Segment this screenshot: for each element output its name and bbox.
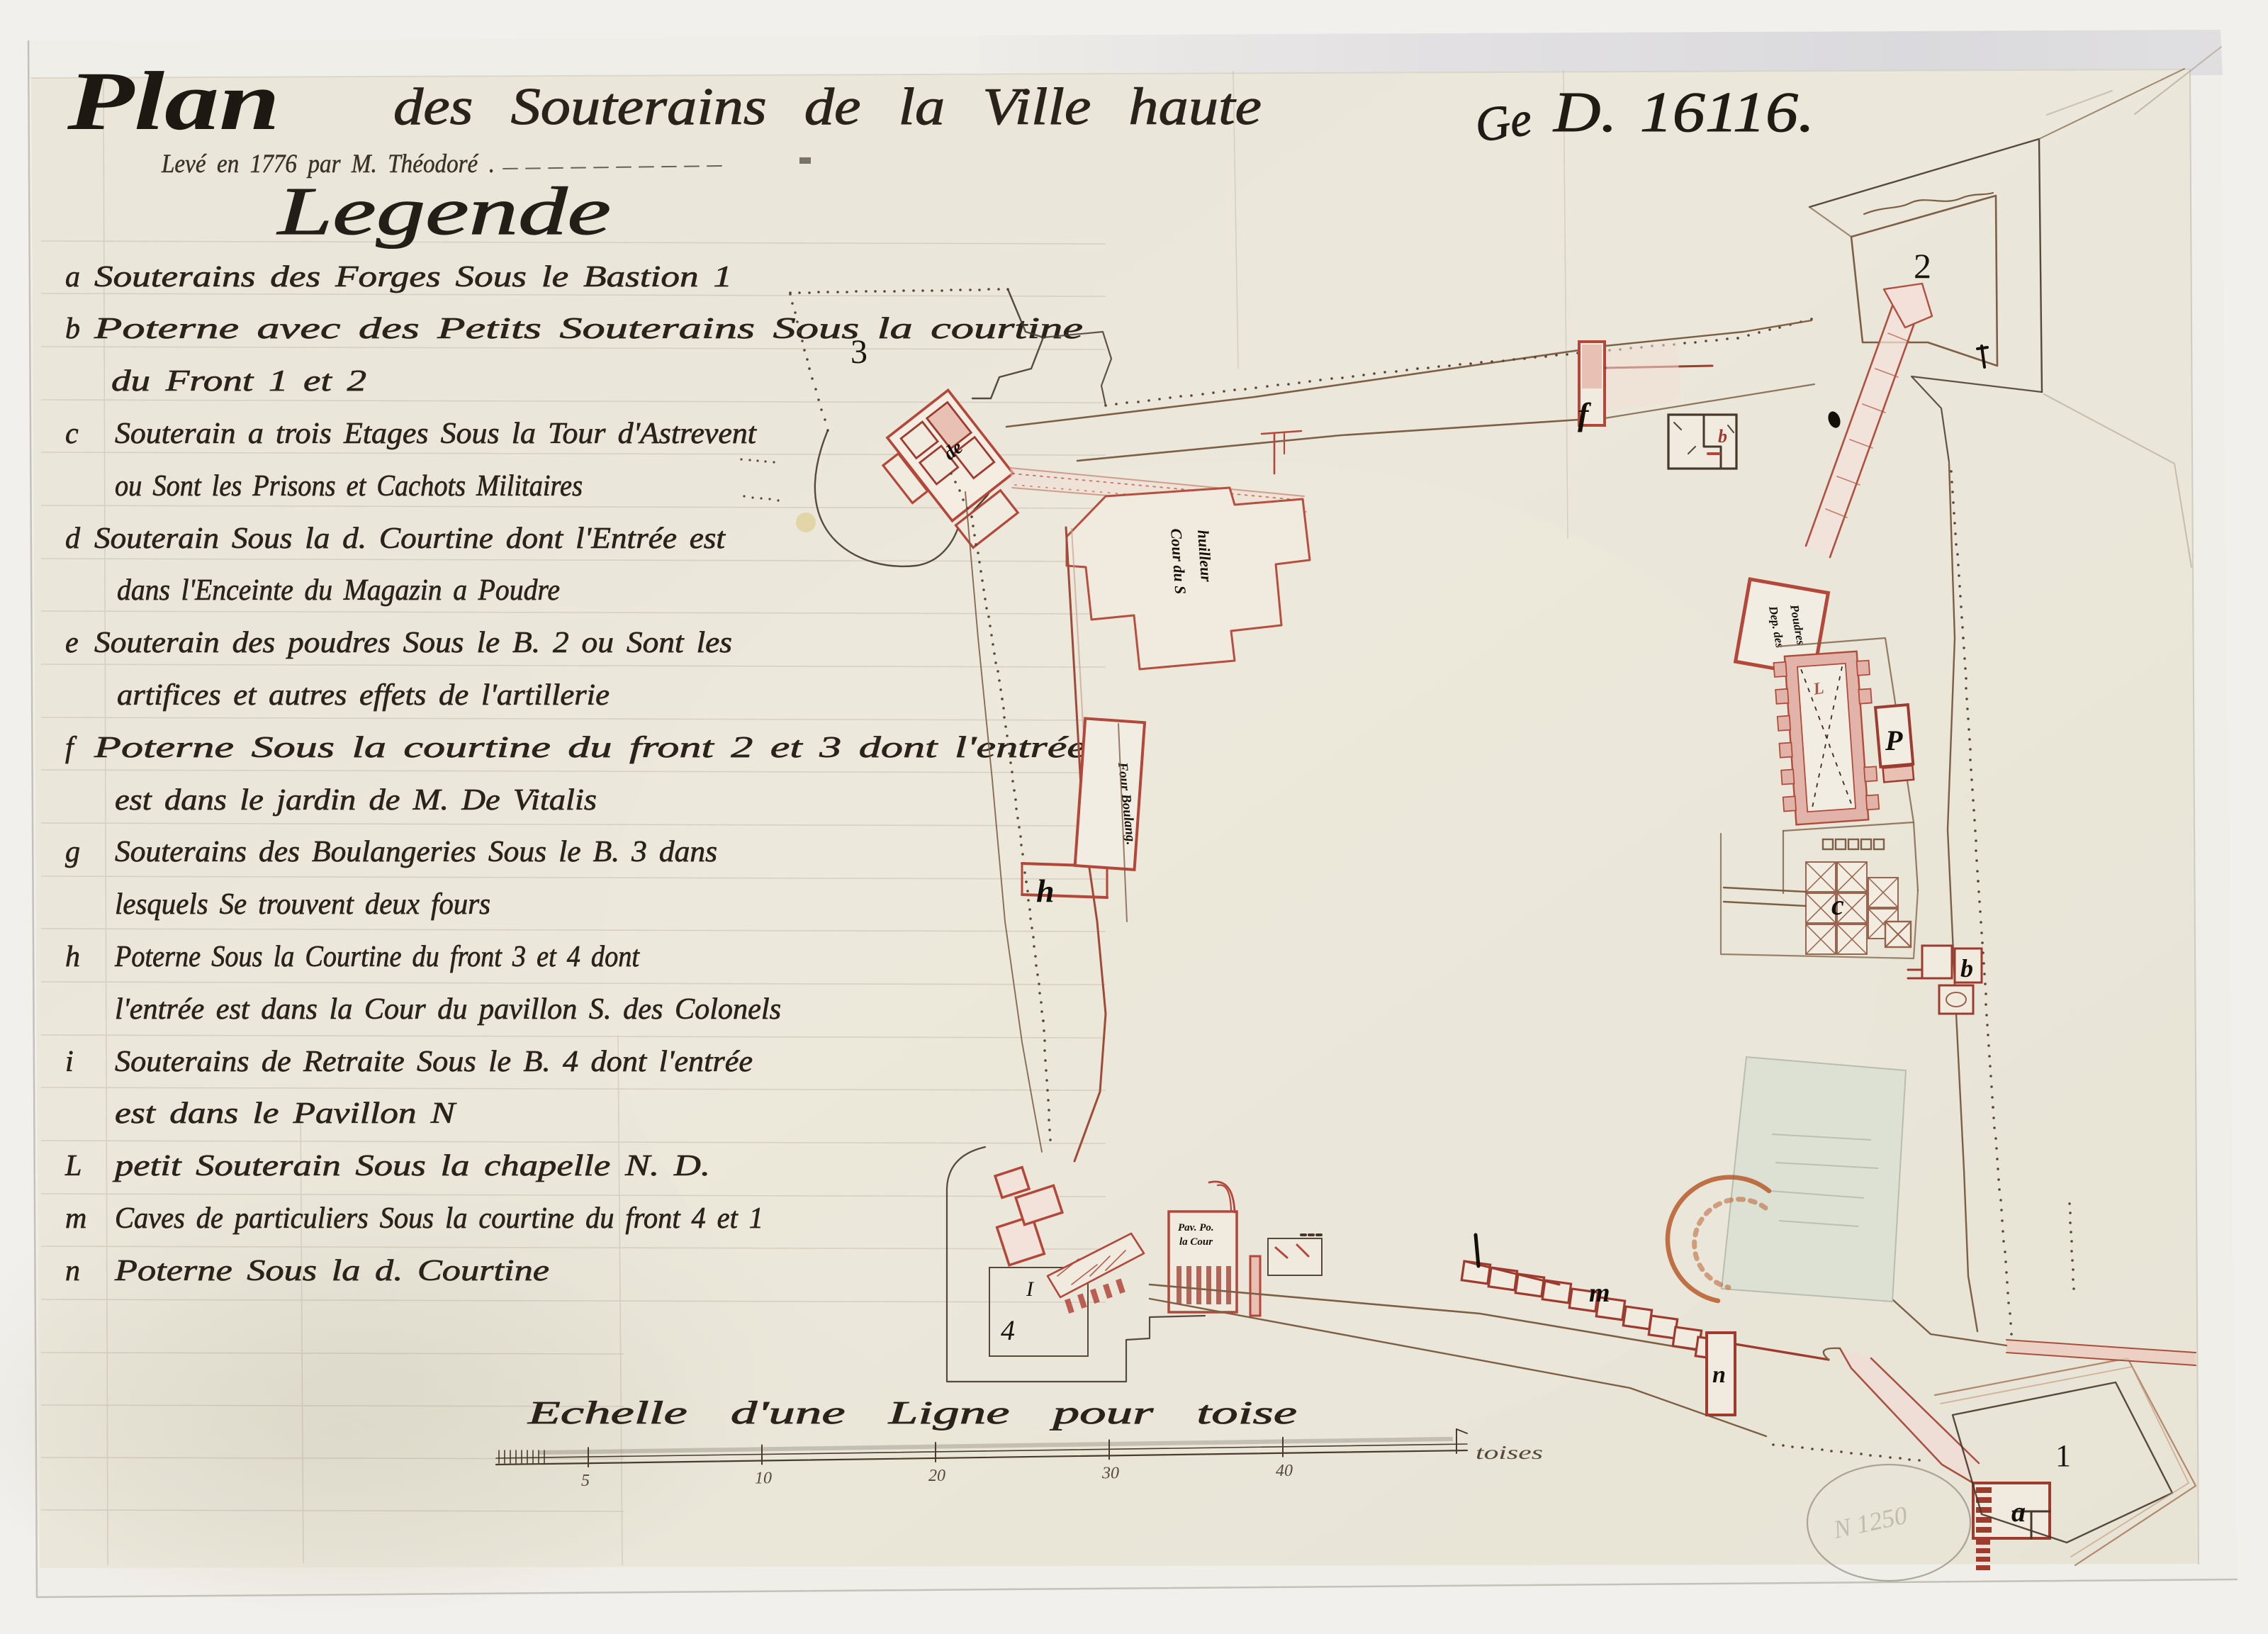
svg-text:D. 16116.: D. 16116. [1553, 82, 1814, 144]
svg-text:Souterain a trois Etages Sous: Souterain a trois Etages Sous la Tour d'… [115, 418, 757, 450]
svg-text:h: h [65, 941, 80, 973]
svg-text:Souterains des Forges Sous le: Souterains des Forges Sous le Bastion 1 [94, 261, 732, 293]
svg-text:m: m [1589, 1278, 1610, 1308]
svg-text:Caves de particuliers Sous la: Caves de particuliers Sous la courtine d… [115, 1202, 763, 1235]
svg-text:g: g [65, 836, 80, 868]
svg-text:l'entrée est dans la Cour du p: l'entrée est dans la Cour du pavillon S.… [115, 993, 781, 1026]
svg-text:P: P [1885, 724, 1903, 756]
svg-text:Souterains de Retraite Sous le: Souterains de Retraite Sous le B. 4 dont… [115, 1046, 753, 1078]
svg-text:a: a [2011, 1496, 2026, 1528]
svg-text:Poterne avec des Petits Souter: Poterne avec des Petits Souterains Sous … [93, 313, 1083, 345]
svg-text:L: L [64, 1150, 82, 1182]
svg-text:Plan: Plan [67, 55, 280, 147]
svg-text:20: 20 [928, 1467, 945, 1485]
svg-text:la Cour: la Cour [1179, 1236, 1213, 1248]
svg-text:30: 30 [1101, 1464, 1119, 1482]
svg-text:40: 40 [1276, 1462, 1293, 1480]
svg-text:dans l'Enceinte du Magazin a P: dans l'Enceinte du Magazin a Poudre [117, 574, 560, 607]
svg-text:n: n [65, 1255, 80, 1287]
svg-text:est dans le Pavillon N: est dans le Pavillon N [115, 1097, 456, 1130]
svg-text:lesquels Se trouvent deux four: lesquels Se trouvent deux fours [115, 888, 490, 921]
svg-text:b: b [1960, 954, 1973, 983]
svg-text:d: d [65, 522, 81, 555]
svg-text:des Souterains de la Ville hau: des Souterains de la Ville haute [393, 78, 1262, 136]
svg-text:b: b [1718, 426, 1727, 447]
svg-text:toises: toises [1476, 1442, 1543, 1463]
svg-text:huilleur: huilleur [1194, 530, 1216, 583]
svg-text:Ge: Ge [1472, 91, 1535, 152]
svg-text:2: 2 [1914, 246, 1931, 286]
svg-text:Poterne Sous la d. Courtine: Poterne Sous la d. Courtine [114, 1255, 549, 1287]
svg-text:artifices et autres effets de: artifices et autres effets de l'artiller… [117, 679, 610, 712]
svg-text:Poterne Sous la courtine du fr: Poterne Sous la courtine du front 2 et 3… [94, 732, 1087, 764]
svg-text:a: a [65, 261, 80, 293]
svg-text:3: 3 [850, 333, 868, 371]
svg-text:Souterain Sous la d. Courtine: Souterain Sous la d. Courtine dont l'Ent… [94, 522, 726, 555]
svg-text:Poterne Sous la Courtine du fr: Poterne Sous la Courtine du front 3 et 4… [114, 941, 640, 973]
svg-text:10: 10 [755, 1470, 772, 1488]
svg-text:c: c [65, 418, 79, 450]
svg-text:1: 1 [2055, 1438, 2071, 1473]
svg-text:b: b [65, 313, 80, 345]
svg-text:du Front 1 et 2: du Front 1 et 2 [111, 365, 366, 398]
svg-text:Pav. Po.: Pav. Po. [1178, 1222, 1214, 1233]
svg-text:e: e [65, 627, 79, 659]
svg-text:ou Sont les Prisons et Cachots: ou Sont les Prisons et Cachots Militaire… [115, 470, 583, 503]
svg-text:4: 4 [1001, 1314, 1015, 1346]
svg-text:5: 5 [581, 1472, 590, 1490]
svg-text:m: m [65, 1202, 86, 1235]
svg-text:i: i [65, 1046, 74, 1078]
svg-text:c: c [1831, 889, 1844, 921]
svg-text:Echelle d'une Ligne pour toise: Echelle d'une Ligne pour toise [527, 1394, 1297, 1431]
svg-text:Souterains des Boulangeries So: Souterains des Boulangeries Sous le B. 3… [115, 836, 717, 868]
svg-text:petit Souterain Sous la chapel: petit Souterain Sous la chapelle N. D. [112, 1150, 710, 1182]
svg-text:est dans le jardin de M. De Vi: est dans le jardin de M. De Vitalis [115, 784, 597, 817]
svg-text:Legende: Legende [276, 173, 611, 249]
svg-text:h: h [1036, 873, 1055, 909]
svg-text:n: n [1712, 1362, 1726, 1388]
svg-text:Souterain des poudres Sous le: Souterain des poudres Sous le B. 2 ou So… [94, 627, 732, 659]
